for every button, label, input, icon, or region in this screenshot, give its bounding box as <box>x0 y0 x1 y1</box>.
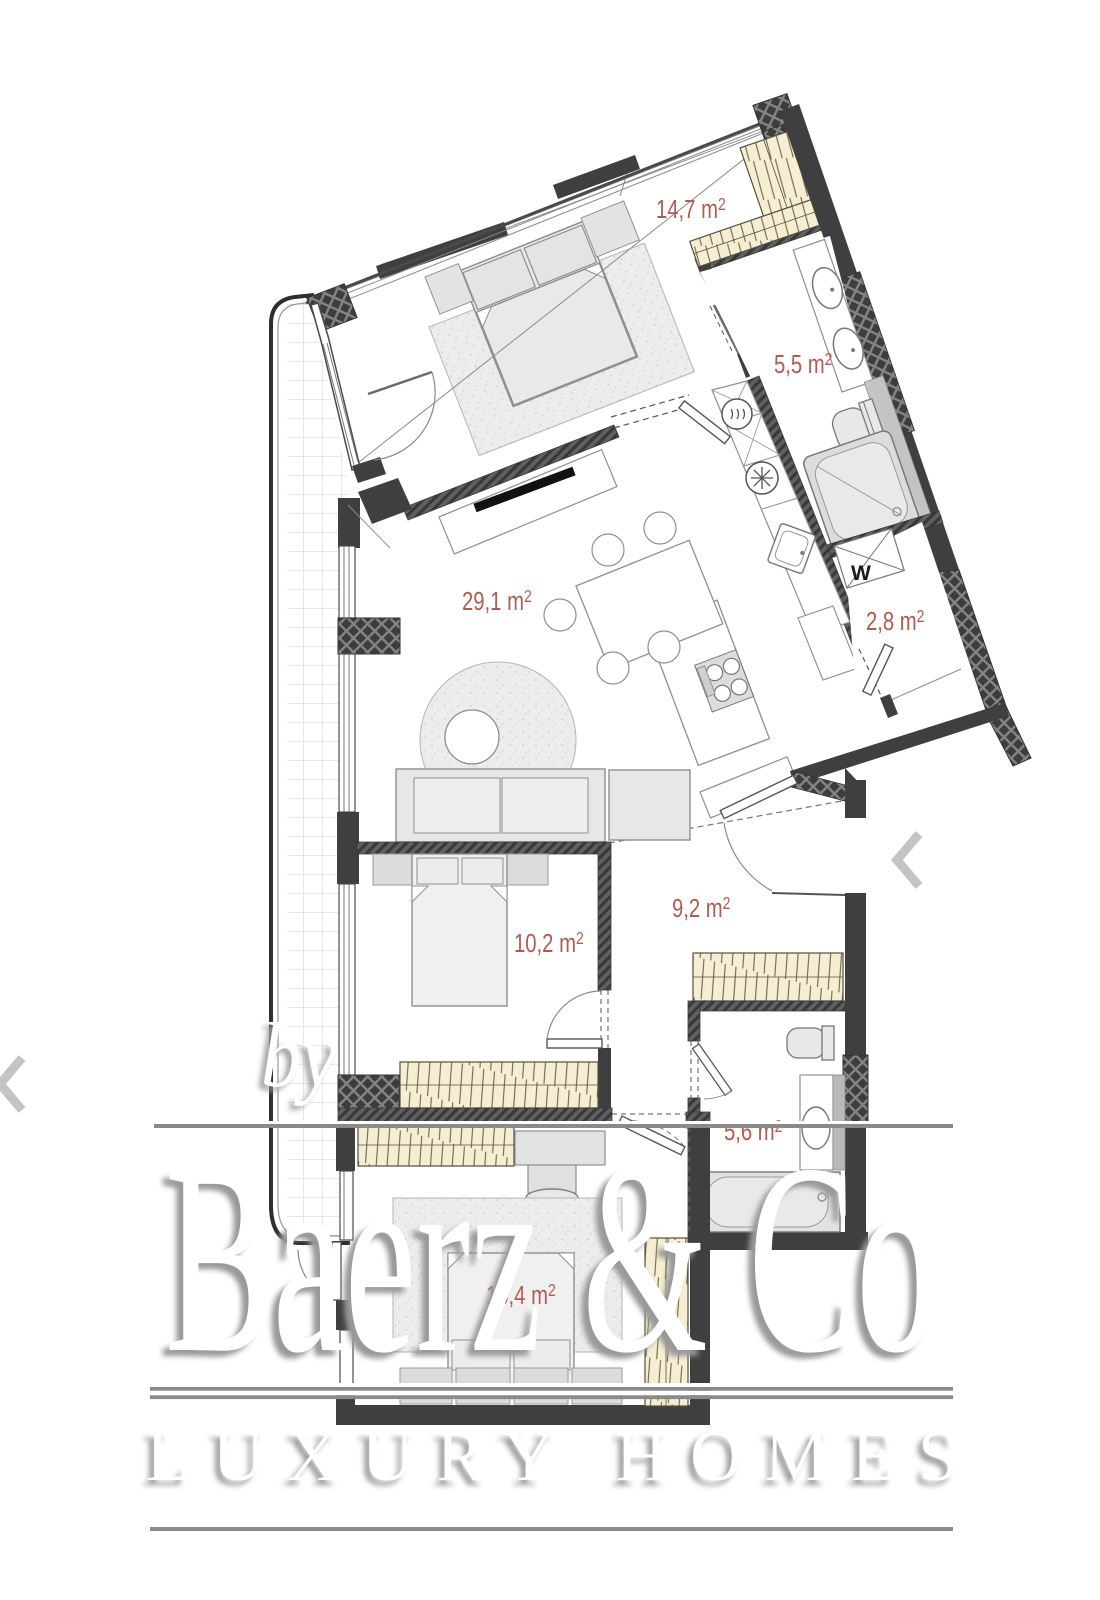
svg-text:by: by <box>261 1004 337 1106</box>
svg-text:2,8 m2: 2,8 m2 <box>866 606 925 635</box>
svg-text:Baerz & Co: Baerz & Co <box>165 1108 937 1409</box>
svg-text:10,2 m2: 10,2 m2 <box>514 928 584 957</box>
svg-text:W: W <box>851 562 871 585</box>
svg-text:29,1 m2: 29,1 m2 <box>462 586 532 615</box>
svg-text:14,7 m2: 14,7 m2 <box>656 194 726 223</box>
svg-text:5,5 m2: 5,5 m2 <box>774 349 833 378</box>
svg-text:9,2 m2: 9,2 m2 <box>672 893 731 922</box>
